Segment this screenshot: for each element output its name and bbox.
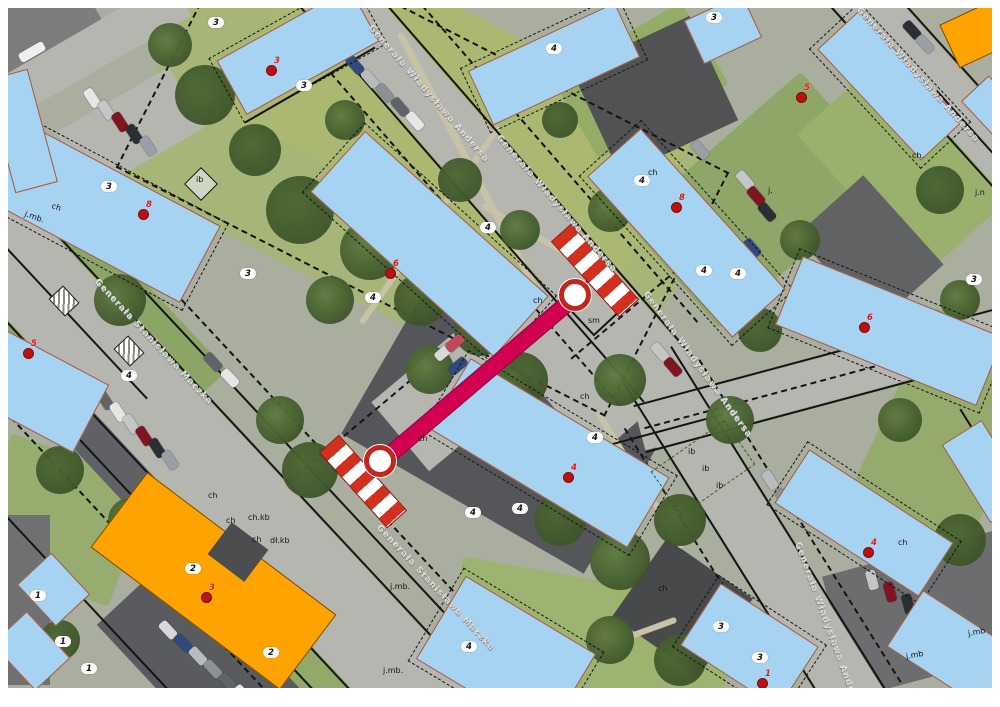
sheet-margin-top [0,0,1000,8]
survey-point-number: 8 [146,200,152,210]
parcel-number-badge: 1 [55,636,71,647]
cadastral-code-label: ch. [912,151,924,160]
survey-point-number: 5 [804,83,810,93]
parcel-number-badge: 2 [185,563,201,574]
cadastral-code-label: dł.kb [270,536,290,545]
parcel-number-badge: 3 [713,621,729,632]
survey-point-number: 1 [765,669,771,679]
parcel-number-badge: 4 [546,43,562,54]
parcel-number-badge: 3 [752,652,768,663]
tree [878,398,922,442]
cadastral-code-label: j. [768,186,773,195]
tree [36,446,84,494]
survey-point-dot [385,268,396,279]
cadastral-code-label: ib [196,175,203,184]
sheet-margin-right [992,0,1000,707]
tree [500,210,540,250]
cadastral-code-label: ch [226,516,235,525]
map-canvas: Generała Stanisława MaczkaGenerała Stani… [0,0,1000,707]
tree [542,102,578,138]
survey-point-number: 6 [867,313,873,323]
parcel-number-badge: 4 [461,641,477,652]
tree [306,276,354,324]
survey-point-dot [863,547,874,558]
sheet-margin-left [0,0,8,707]
parcel-number-badge: 4 [634,175,650,186]
survey-point-number: 4 [571,463,577,473]
cadastral-code-label: j.mb. [390,582,410,591]
survey-point-dot [563,472,574,483]
tree [256,396,304,444]
cadastral-code-label: ch [648,168,657,177]
survey-point-dot [796,92,807,103]
parcel-number-badge: 4 [696,265,712,276]
parcel-number-badge: 1 [30,590,46,601]
parcel-number-badge: 4 [730,268,746,279]
tree [229,124,281,176]
survey-point-dot [859,322,870,333]
survey-point-dot [266,65,277,76]
parcel-number-badge: 3 [296,80,312,91]
survey-point-number: 4 [871,538,877,548]
parcel-number-badge: 1 [81,663,97,674]
corridor-endpoint-circle [559,279,591,311]
parcel-number-badge: 4 [587,432,603,443]
survey-point-dot [201,592,212,603]
cadastral-code-label: j.n [975,188,985,197]
parcel-number-badge: 4 [512,503,528,514]
cadastral-code-label: ch [418,434,427,443]
cadastral-code-label: ch [252,535,261,544]
survey-point-number: 6 [393,259,399,269]
corridor-endpoint-circle [364,445,396,477]
cadastral-code-label: ch [658,584,667,593]
cadastral-code-label: ch [580,392,589,401]
parcel-number-badge: 3 [240,268,256,279]
tree [148,23,192,67]
parcel-number-badge: 4 [365,292,381,303]
survey-point-dot [671,202,682,213]
parcel-number-badge: 3 [966,274,982,285]
cadastral-code-label: ch [533,296,542,305]
survey-point-number: 8 [679,193,685,203]
parcel-number-badge: 4 [465,507,481,518]
cadastral-code-label: j.mb. [383,666,403,675]
cadastral-code-label: ib [702,464,709,473]
cadastral-code-label: ib [688,447,695,456]
survey-point-number: 3 [209,583,215,593]
survey-point-number: 5 [31,339,37,349]
cadastral-code-label: ch [898,538,907,547]
tree [916,166,964,214]
survey-point-dot [138,209,149,220]
parcel-number-badge: 4 [480,222,496,233]
sheet-margin-bottom [0,688,1000,707]
survey-point-dot [23,348,34,359]
cadastral-code-label: sm [588,316,600,325]
parcel-number-badge: 3 [208,17,224,28]
car [220,367,241,388]
parcel-number-badge: 2 [263,647,279,658]
parcel-number-badge: 4 [121,370,137,381]
cadastral-code-label: ch.kb [248,513,270,522]
tree [594,354,646,406]
parcel-number-badge: 3 [101,181,117,192]
cadastral-code-label: ch [208,491,217,500]
survey-point-number: 3 [274,56,280,66]
cadastral-code-label: ib [716,481,723,490]
parcel-number-badge: 3 [706,12,722,23]
